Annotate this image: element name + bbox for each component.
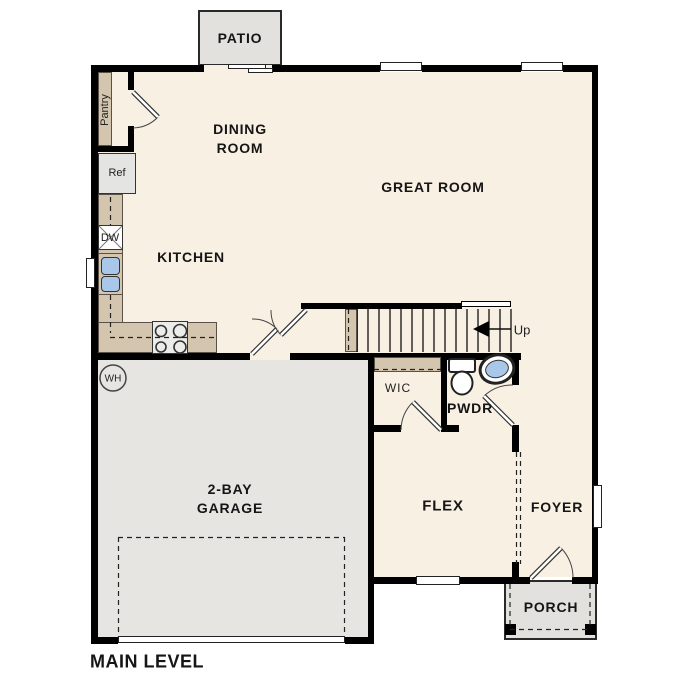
up-arrow-icon — [473, 321, 511, 337]
refrigerator-label: Ref — [108, 167, 125, 179]
toilet-icon — [449, 359, 475, 395]
page-title: MAIN LEVEL — [90, 652, 204, 673]
wic-label: WIC — [385, 381, 411, 395]
kitchen-label: KITCHEN — [157, 249, 225, 265]
pantry-label: Pantry — [99, 94, 111, 126]
pantry-door — [133, 92, 158, 128]
up-label: Up — [514, 323, 531, 338]
powder-label: PWDR — [447, 400, 493, 416]
great-room-label: GREAT ROOM — [381, 179, 484, 195]
flex-label: FLEX — [422, 498, 464, 515]
patio-label: PATIO — [218, 30, 263, 46]
porch-label: PORCH — [524, 599, 579, 615]
powder-sink-icon — [477, 351, 517, 386]
wic-door — [401, 402, 441, 430]
svg-text:WH: WH — [105, 374, 122, 385]
dishwasher-label: DW — [101, 232, 119, 244]
floor-plan: WH PATIO DINING RO — [0, 0, 687, 687]
dining-room-label-1: DINING — [213, 121, 267, 137]
foyer-label: FOYER — [531, 499, 583, 515]
stove-burners-icon — [156, 325, 187, 354]
water-heater-icon: WH — [100, 365, 126, 391]
garage-label-1: 2-BAY — [208, 481, 253, 497]
front-door — [531, 548, 573, 578]
dining-room-label-2: ROOM — [217, 140, 264, 156]
garage-label-2: GARAGE — [197, 500, 263, 516]
